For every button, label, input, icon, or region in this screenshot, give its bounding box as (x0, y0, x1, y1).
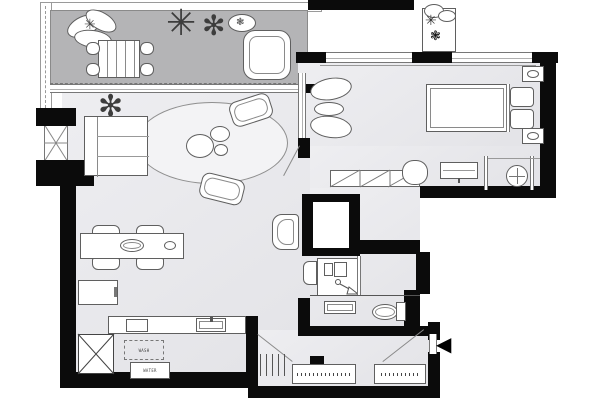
bedroom-window-left (326, 52, 412, 63)
dining-chair (136, 258, 164, 270)
top-plant-icon: ❃ (430, 30, 441, 43)
floor-plan: ✳ ✳ ✻ ❃ ✻ (0, 0, 600, 400)
kitchen-sink (196, 318, 226, 332)
washer-label: WASH (139, 348, 150, 353)
table-decor (164, 241, 176, 250)
nook-bath-divider (310, 295, 420, 296)
shoe-rack-hatch (260, 354, 290, 376)
balcony-chair (140, 63, 154, 76)
nightstand (522, 128, 544, 144)
pillow (510, 87, 534, 107)
coffee-table-small (214, 144, 228, 156)
service-shaft-x (78, 334, 114, 374)
closet-partition (530, 156, 534, 190)
bedroom-window-right (452, 52, 532, 63)
water-heater-label: WATER (143, 368, 157, 373)
closet-partition (484, 156, 488, 190)
wall-bedroom-top-a (296, 52, 326, 63)
wall-nook-top (358, 240, 420, 254)
pouf (402, 160, 428, 185)
wall-dressing-room-bottom (420, 186, 556, 198)
serving-platter (120, 239, 144, 252)
shaft-box-interior (313, 202, 349, 248)
nightstand-lamp (527, 70, 539, 78)
water-heater-box: WATER (130, 362, 170, 379)
wall-entry-right-lower (428, 352, 440, 398)
cooktop (126, 319, 148, 332)
closet-sliding-door (374, 364, 426, 384)
bedroom-window-sill-line (320, 65, 536, 66)
sofa-armrest-line (97, 117, 98, 177)
sofa (84, 116, 148, 176)
lounge-chair-cushion (249, 36, 285, 74)
sliding-rail-ticks (297, 373, 353, 376)
vanity-table (440, 162, 478, 179)
balcony-chair (140, 42, 154, 55)
balcony-rail-dashed-line (45, 6, 46, 108)
toilet-tank (396, 302, 406, 321)
bathroom-sink-basin (327, 304, 353, 311)
wall-nook-right (416, 252, 430, 294)
desk-chair (303, 261, 317, 285)
armchair-cushion (202, 176, 241, 202)
plant-pot (438, 10, 456, 22)
balcony-plant-icon: ✳ (84, 18, 96, 32)
hall-partition-window (298, 73, 306, 141)
nightstand (522, 66, 544, 82)
wall-kitchen-entry-divider (246, 316, 258, 378)
pillow (510, 109, 534, 129)
toilet (372, 304, 398, 320)
wall-left (60, 182, 76, 382)
vanity-table-leg (458, 178, 460, 183)
reading-armchair (272, 214, 299, 250)
sofa-cushion-line (97, 136, 149, 137)
stool-cross-line (517, 168, 518, 184)
entrance-arrow-icon: ◀ (436, 334, 451, 354)
washer-box: WASH (124, 340, 164, 360)
monitor-icon (324, 263, 333, 276)
vanity-stool (506, 165, 528, 187)
cabinet-handle (114, 287, 117, 297)
sofa-cushion-line (97, 156, 149, 157)
sink-basin (199, 321, 223, 329)
bed-sheet-line (430, 88, 504, 128)
wall-bathroom-bottom (298, 326, 430, 336)
toilet-bowl (375, 307, 395, 317)
balcony-chair (86, 42, 100, 55)
plant-star-icon: ✳ (166, 6, 196, 42)
closet-back-line (488, 158, 540, 159)
balcony-table (98, 40, 140, 78)
sliding-track-dashed-line (50, 83, 306, 84)
wall-top-right-of-balcony (308, 0, 414, 10)
planter-flower-icon: ❃ (236, 18, 244, 28)
wall-hall-stub (298, 138, 310, 158)
sliding-rail-ticks (381, 373, 421, 376)
closet-sliding-door (292, 364, 356, 384)
sink-faucet (210, 317, 213, 322)
vanity-table-line (443, 170, 475, 171)
wall-left-block-a (36, 108, 76, 126)
bathroom-sink (324, 301, 356, 314)
nook-partition (357, 256, 361, 296)
nightstand-lamp (527, 132, 539, 140)
side-cabinet (78, 280, 118, 305)
coffee-table (186, 134, 214, 158)
bean-bag (314, 102, 344, 116)
dining-chair (92, 258, 120, 270)
coffee-table-small (210, 126, 230, 142)
lounge-chair (243, 30, 291, 80)
balcony-chair (86, 63, 100, 76)
computer-icon (334, 262, 347, 277)
reading-armchair-cushion (277, 219, 294, 245)
platter-inner (123, 242, 141, 249)
wall-bottom-entry (248, 386, 440, 398)
wall-bedroom-top-b (412, 52, 452, 63)
left-facade-window-x (44, 124, 68, 162)
top-plant-icon: ✳ (425, 14, 437, 28)
balcony-sliding-window (50, 84, 306, 93)
bed-mattress (426, 84, 508, 132)
plant-star-icon: ✻ (202, 12, 225, 40)
